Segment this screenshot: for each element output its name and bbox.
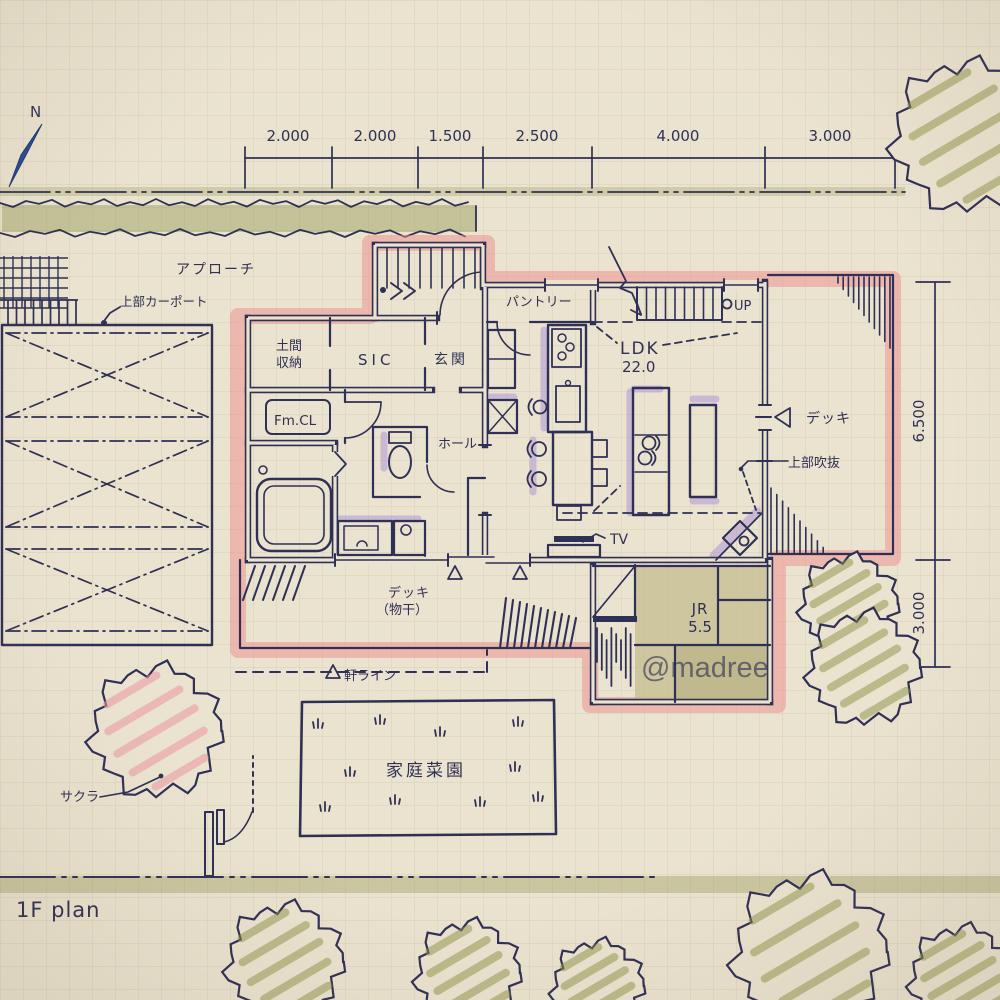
dim-top-6: 3.000 (809, 127, 852, 145)
dim-top-4: 2.500 (516, 127, 559, 145)
graph-grid (0, 0, 1000, 1000)
dim-top-1: 2.000 (267, 127, 310, 145)
label-deck-laundry-sub: （物干） (376, 603, 428, 618)
label-genkan: 玄関 (434, 351, 468, 368)
label-deck: デッキ (806, 410, 851, 427)
label-garden: 家庭菜園 (386, 761, 466, 781)
label-up: UP (734, 299, 752, 314)
label-approach: アプローチ (176, 262, 256, 278)
dim-right-1: 6.500 (910, 400, 928, 443)
north-label: N (30, 103, 41, 121)
plan-canvas: N 2.000 2.000 1.500 2.500 4.000 3.000 6.… (0, 0, 1000, 1000)
plan-title: 1F plan (16, 898, 100, 922)
watermark: @madree (641, 652, 769, 684)
label-ldk: LDK (620, 339, 660, 359)
label-fmcl: Fm.CL (274, 413, 317, 429)
dim-top-5: 4.000 (657, 127, 700, 145)
dim-right-2: 3.000 (910, 592, 928, 635)
dim-top-2: 2.000 (354, 127, 397, 145)
label-carport: 上部カーポート (120, 294, 208, 309)
label-void-above: 上部吹抜 (788, 455, 840, 471)
dim-top-3: 1.500 (429, 127, 472, 145)
jr-closet-bar (593, 616, 637, 622)
label-hall: ホール (438, 437, 477, 452)
label-ldk-area: 22.0 (622, 358, 655, 376)
label-doma1: 土間 (276, 339, 302, 354)
label-jr: JR (691, 600, 709, 618)
label-deck-laundry: デッキ (388, 585, 430, 601)
label-eave-line: 軒ライン (344, 669, 396, 684)
label-doma2: 収納 (276, 356, 302, 371)
label-pantry: パントリー (506, 295, 572, 310)
floor-plan-sketch: N 2.000 2.000 1.500 2.500 4.000 3.000 6.… (0, 0, 1000, 1000)
carport-leader-dot (101, 320, 107, 326)
label-tv: TV (609, 532, 629, 548)
label-jr-area: 5.5 (688, 618, 712, 636)
label-sic: SIC (358, 351, 394, 369)
label-sakura: サクラ (60, 790, 99, 805)
